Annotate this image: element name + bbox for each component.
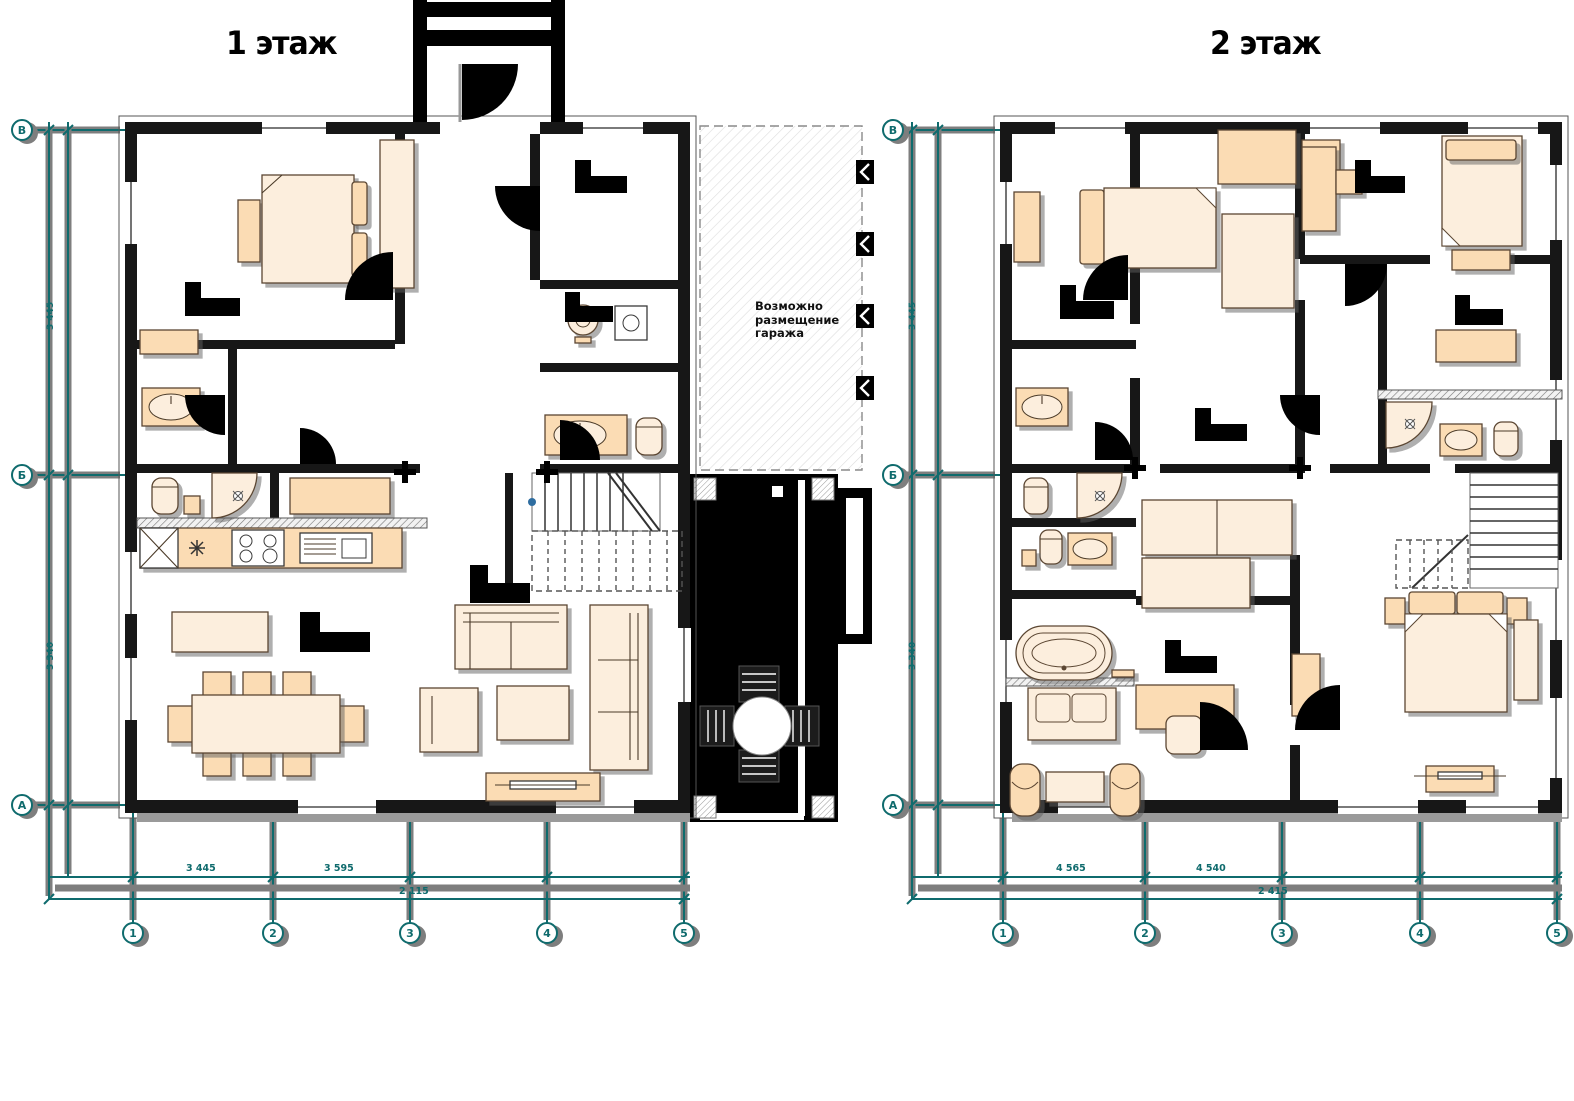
axis-marker-row: Б — [11, 464, 33, 486]
dim-label: 3 340 — [908, 642, 918, 670]
nightstand — [238, 200, 260, 262]
wardrobe — [1142, 558, 1250, 608]
sofa-small — [1436, 330, 1516, 362]
axis-marker-row: В — [11, 119, 33, 141]
dining-table — [192, 695, 340, 753]
toilet — [636, 418, 662, 455]
vanity-cabinet — [140, 330, 198, 354]
garage-note-line: гаража — [755, 327, 839, 341]
armchair — [1010, 764, 1040, 816]
toilet — [152, 478, 178, 514]
axis-marker-column: 5 — [1546, 922, 1568, 944]
wardrobe — [1222, 214, 1294, 308]
washing-machine — [615, 306, 647, 340]
cabinet — [184, 496, 200, 514]
window — [1466, 799, 1538, 814]
dim-label: 2 115 — [399, 886, 429, 897]
sink-symbol — [189, 540, 205, 556]
floor2-plan — [994, 116, 1568, 822]
chair — [283, 751, 311, 776]
toilet — [1040, 530, 1062, 564]
window — [1549, 698, 1563, 778]
chair — [203, 751, 231, 776]
stove — [232, 530, 284, 566]
dim-label: 4 565 — [1056, 863, 1086, 874]
kitchen-sink-unit — [300, 533, 372, 563]
window — [583, 121, 643, 135]
sink — [1068, 533, 1112, 565]
toilet — [1024, 478, 1048, 514]
sideboard — [172, 612, 268, 652]
bench — [1452, 250, 1510, 270]
terrace-chair — [739, 666, 779, 702]
toilet — [1494, 422, 1518, 456]
dim-label: 3 340 — [46, 642, 56, 670]
window — [1549, 380, 1563, 440]
axis-marker-column: 2 — [262, 922, 284, 944]
axis-marker-column: 1 — [992, 922, 1014, 944]
axis-marker-row: В — [882, 119, 904, 141]
tv-console — [486, 773, 600, 801]
terrace-round-table — [733, 697, 791, 755]
terrace-chair — [700, 706, 734, 746]
dresser — [1014, 192, 1040, 262]
axis-marker-column: 1 — [122, 922, 144, 944]
axis-marker-column: 3 — [399, 922, 421, 944]
bathtub — [1016, 626, 1112, 680]
hall-bench — [290, 478, 390, 514]
terrace — [690, 474, 872, 822]
armchair — [420, 688, 478, 752]
bed-double — [262, 175, 367, 283]
window — [1549, 165, 1563, 240]
axis-marker-row: А — [882, 794, 904, 816]
chair — [203, 672, 231, 697]
window — [262, 121, 326, 135]
tv-console — [1414, 766, 1506, 792]
chair — [168, 706, 194, 742]
armchair — [1110, 764, 1140, 816]
floor1-plan — [119, 0, 696, 822]
window — [124, 182, 138, 244]
window — [298, 799, 376, 814]
sofa — [455, 605, 567, 669]
axis-marker-row: А — [11, 794, 33, 816]
window — [1055, 121, 1125, 135]
wardrobe — [1514, 620, 1538, 700]
garage-note-line: размещение — [755, 314, 839, 328]
garage-note: Возможно размещение гаража — [755, 300, 839, 341]
entrance-door-swing — [462, 64, 518, 120]
sink — [1016, 388, 1068, 426]
axis-marker-column: 2 — [1134, 922, 1156, 944]
dim-label: 3 445 — [46, 302, 56, 330]
shelf — [1112, 670, 1134, 677]
kitchen-counter — [140, 528, 402, 568]
chair — [243, 751, 271, 776]
axis-marker-column: 4 — [536, 922, 558, 944]
window — [999, 640, 1013, 702]
chair — [243, 672, 271, 697]
sofa-long — [590, 605, 648, 770]
chair — [283, 672, 311, 697]
dim-label: 3 595 — [324, 863, 354, 874]
axis-marker-column: 3 — [1271, 922, 1293, 944]
floorplan-sheet: 1 этаж 2 этаж Возможно размещение гаража… — [0, 0, 1574, 1101]
dim-label: 3 445 — [908, 302, 918, 330]
floor2-title: 2 этаж — [1210, 25, 1321, 63]
sink — [1440, 424, 1482, 456]
window — [999, 182, 1013, 244]
bed-double — [1080, 188, 1216, 268]
axis-marker-column: 4 — [1409, 922, 1431, 944]
floor1-title: 1 этаж — [226, 25, 337, 63]
window — [1468, 121, 1538, 135]
side-table — [1046, 772, 1104, 802]
axis-marker-column: 5 — [673, 922, 695, 944]
axis-marker-row: Б — [882, 464, 904, 486]
window — [1338, 799, 1418, 814]
dim-label: 4 540 — [1196, 863, 1226, 874]
entrance-porch — [413, 0, 565, 135]
coffee-table — [497, 686, 569, 740]
terrace-door — [677, 628, 691, 702]
dim-label: 3 445 — [186, 863, 216, 874]
window — [1310, 121, 1380, 135]
cabinet — [1022, 550, 1036, 566]
dim-label: 2 415 — [1258, 886, 1288, 897]
wardrobe — [1218, 130, 1296, 184]
garage-area — [700, 126, 874, 470]
plan-drawing — [0, 0, 1574, 1101]
window — [124, 552, 138, 614]
garage-note-line: Возможно — [755, 300, 839, 314]
bed-single — [1442, 136, 1522, 246]
chair — [338, 706, 364, 742]
loveseat — [1028, 688, 1116, 740]
window — [124, 658, 138, 720]
